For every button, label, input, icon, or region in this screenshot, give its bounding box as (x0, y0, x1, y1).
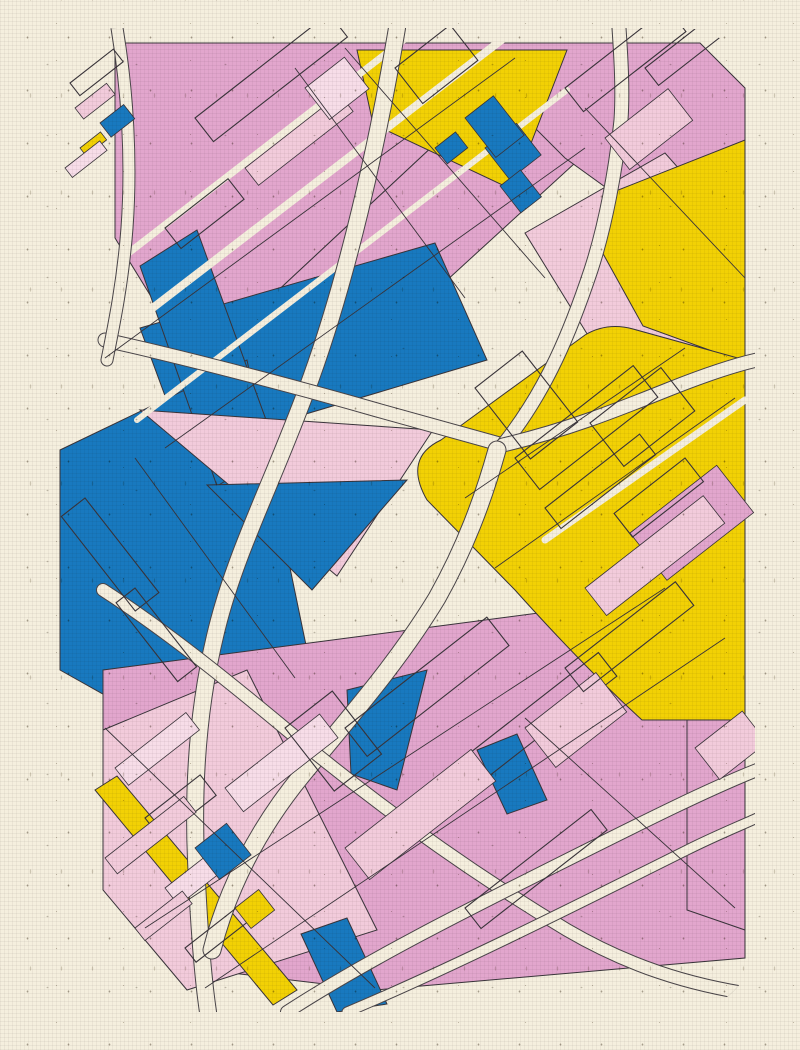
poster-canvas (0, 0, 800, 1050)
parcel-detail (75, 83, 115, 119)
map-shapes-svg (45, 28, 755, 1012)
map-artwork (45, 28, 755, 1012)
